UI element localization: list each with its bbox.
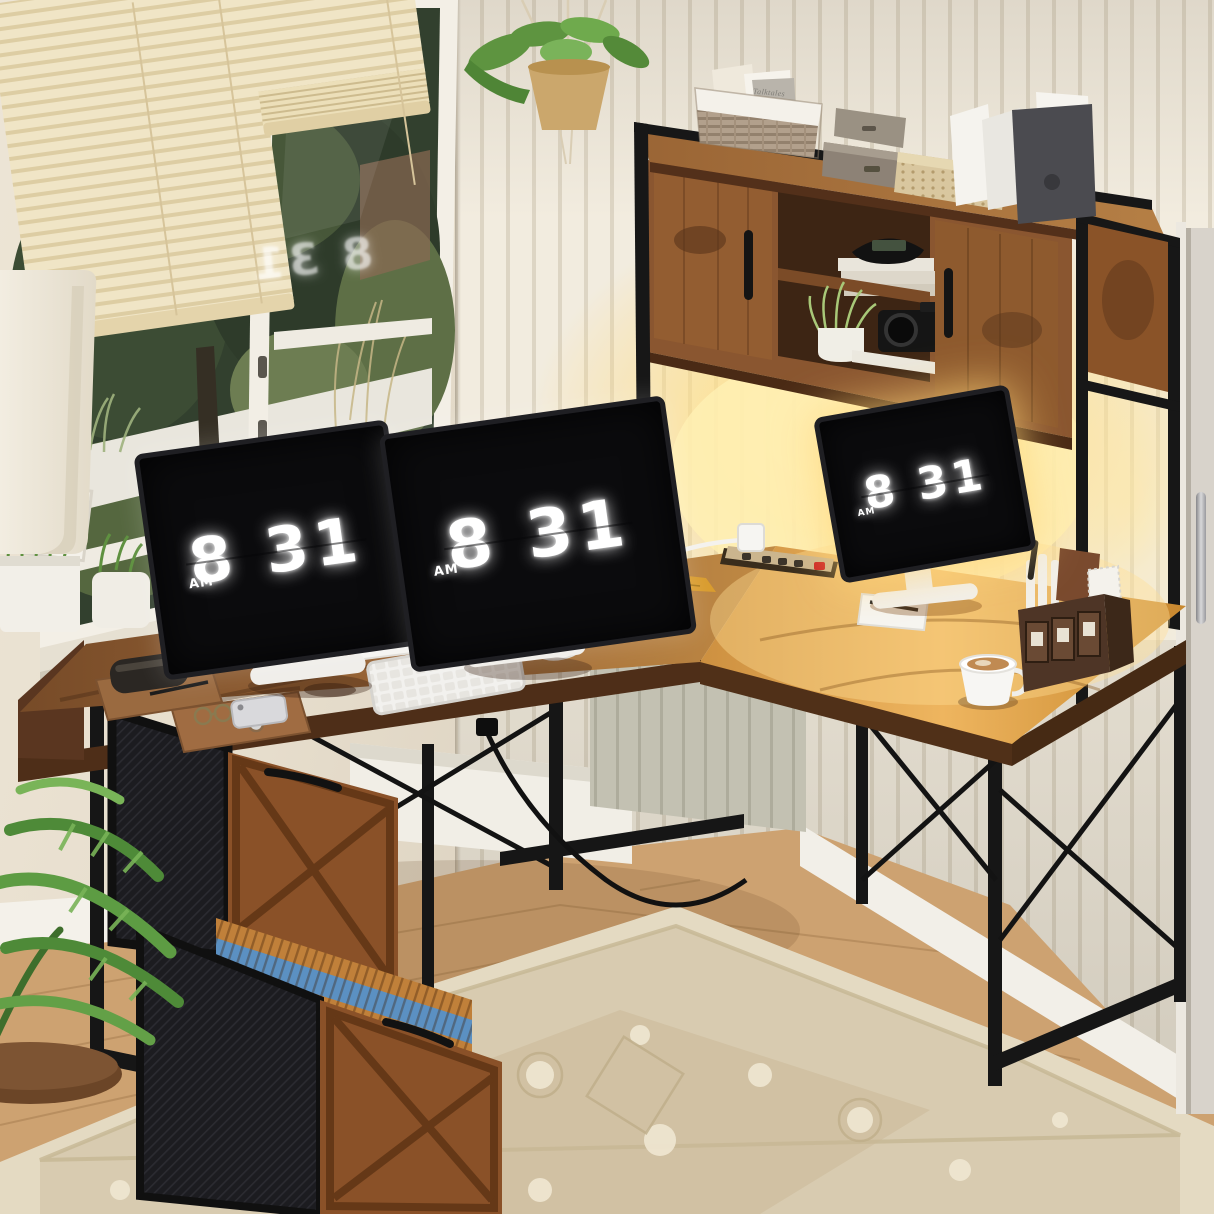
home-office-scene: AM 8 31 AM 8 31 AM 8 31 8 31 Talktales	[0, 0, 1214, 1214]
desk-leg	[1174, 646, 1186, 1002]
power-plug	[476, 718, 498, 736]
monitor-center: AM 8 31	[379, 395, 698, 673]
left-door-handle	[744, 230, 753, 300]
hutch-left-door	[654, 166, 772, 360]
flip-clock: AM 8 31	[139, 425, 413, 675]
magazine-file-dark	[1012, 104, 1096, 224]
flip-clock: AM 8 31	[384, 401, 691, 667]
wicker-basket	[695, 64, 822, 158]
power-switch	[814, 562, 825, 570]
floor-lamp	[0, 270, 96, 554]
desk-leg-center	[549, 684, 563, 890]
white-planter-pot	[92, 572, 150, 628]
usb-adapter	[738, 524, 764, 551]
clock-time: 8 31	[184, 502, 367, 599]
pen-white	[1038, 554, 1047, 610]
flip-clock: AM 8 31	[819, 390, 1032, 578]
monitor-right: AM 8 31	[813, 384, 1037, 584]
clock-time: 8 31	[441, 483, 635, 585]
hanging-plant	[463, 0, 654, 164]
clock-time: 8 31	[860, 448, 990, 520]
white-planter-box	[0, 556, 80, 632]
macrame-tassel	[560, 130, 572, 164]
monitor-left: AM 8 31	[133, 419, 418, 680]
hanging-pot	[528, 66, 610, 130]
door-handle	[1196, 492, 1206, 624]
right-door-handle	[944, 268, 953, 338]
window-latch	[258, 356, 267, 378]
